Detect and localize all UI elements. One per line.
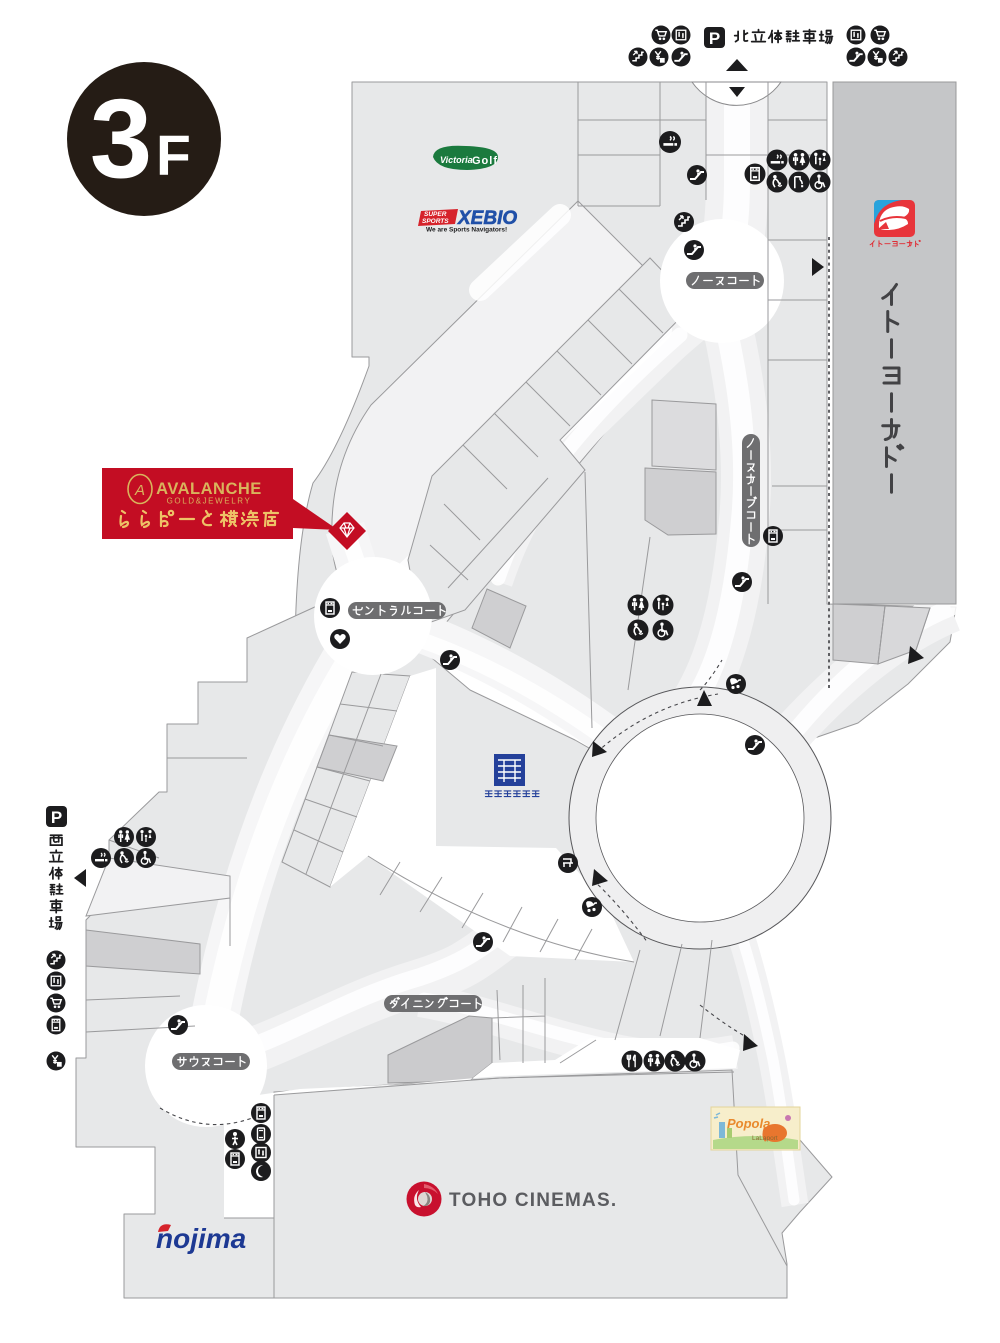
svg-text:P: P (51, 808, 62, 827)
svg-text:LaLaport: LaLaport (752, 1135, 778, 1142)
svg-text:P: P (709, 29, 720, 48)
svg-text:Victoria: Victoria (440, 155, 473, 165)
svg-text:GOLD&JEWELRY: GOLD&JEWELRY (167, 497, 252, 506)
svg-text:F: F (156, 124, 191, 188)
svg-text:TOHO CINEMAS.: TOHO CINEMAS. (449, 1190, 617, 1211)
svg-text:SUPER: SUPER (424, 211, 447, 218)
svg-text:Golf: Golf (472, 155, 498, 167)
svg-text:3: 3 (90, 76, 152, 201)
svg-text:We are Sports Navigators!: We are Sports Navigators! (426, 227, 507, 234)
svg-text:AVALANCHE: AVALANCHE (156, 480, 262, 498)
svg-text:A: A (134, 482, 145, 499)
svg-text:SPORTS: SPORTS (422, 218, 449, 225)
